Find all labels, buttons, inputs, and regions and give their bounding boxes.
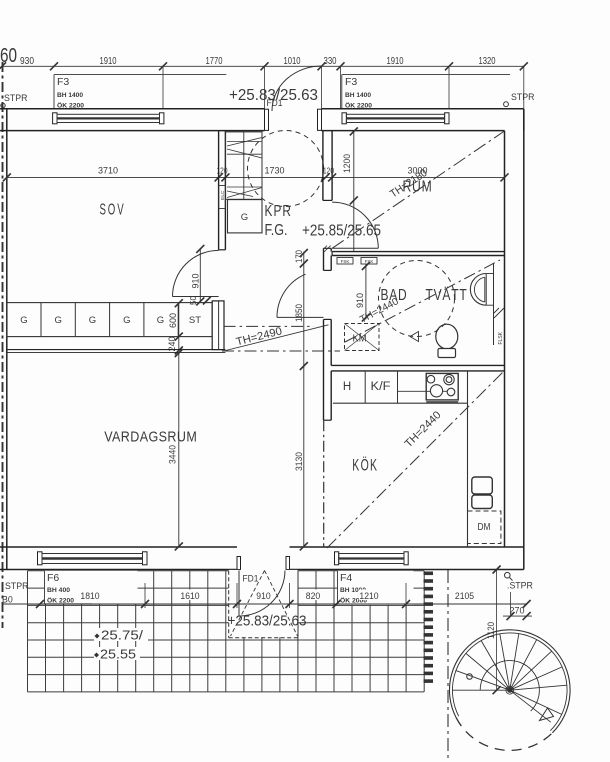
svg-text:.STPR: .STPR: [507, 581, 533, 591]
svg-text:F4: F4: [340, 572, 352, 584]
svg-text:270: 270: [510, 606, 525, 617]
svg-text:STPR: STPR: [511, 92, 534, 102]
svg-text:+25.85/25.65: +25.85/25.65: [302, 223, 381, 240]
svg-text:STPR: STPR: [4, 93, 27, 103]
svg-text:TVÄTT: TVÄTT: [426, 287, 468, 304]
svg-text:1320: 1320: [479, 56, 496, 67]
svg-text:KM: KM: [353, 334, 367, 345]
svg-text:3130: 3130: [294, 452, 305, 471]
svg-text:2105: 2105: [455, 591, 474, 602]
svg-text:KÖK: KÖK: [352, 457, 378, 475]
svg-text:25.75/: 25.75/: [101, 629, 144, 643]
svg-text:60: 60: [0, 45, 17, 67]
svg-text:STPR: STPR: [5, 581, 28, 591]
svg-text:+25.83/25.63: +25.83/25.63: [228, 613, 307, 630]
svg-text:BH 400: BH 400: [47, 587, 70, 594]
svg-text:SOV: SOV: [100, 202, 126, 219]
svg-text:ST: ST: [189, 315, 201, 326]
svg-text:B0: B0: [2, 595, 13, 605]
svg-text:1730: 1730: [265, 166, 285, 177]
svg-text:F3: F3: [345, 76, 357, 88]
svg-text:1610: 1610: [180, 591, 199, 602]
svg-text:KPR: KPR: [265, 203, 293, 220]
svg-text:H: H: [343, 381, 351, 393]
svg-text:F.G.: F.G.: [265, 222, 288, 239]
svg-text:G: G: [241, 212, 248, 223]
svg-text:3710: 3710: [98, 166, 118, 177]
svg-text:G: G: [55, 315, 62, 326]
svg-text:BH 1400: BH 1400: [57, 92, 83, 99]
svg-text:600: 600: [168, 313, 179, 328]
svg-text:50: 50: [189, 295, 198, 305]
svg-text:G: G: [157, 315, 164, 326]
svg-text:910: 910: [256, 591, 270, 602]
svg-text:1120: 1120: [486, 622, 496, 639]
svg-text:1010: 1010: [284, 56, 301, 67]
svg-text:910: 910: [191, 274, 202, 289]
svg-text:170: 170: [294, 250, 305, 263]
svg-text:F6: F6: [47, 572, 59, 584]
svg-text:G: G: [89, 315, 96, 326]
svg-text:G: G: [20, 315, 27, 326]
svg-text:BH 1400: BH 1400: [345, 92, 371, 99]
svg-text:FLSK: FLSK: [498, 331, 504, 344]
svg-text:ELC: ELC: [220, 190, 226, 200]
svg-text:1770: 1770: [206, 56, 223, 67]
svg-text:820: 820: [306, 591, 320, 602]
svg-text:K/F: K/F: [371, 381, 391, 393]
svg-text:ÖK 2200: ÖK 2200: [47, 596, 74, 605]
svg-text:FSK: FSK: [341, 259, 350, 264]
svg-text:25.55: 25.55: [100, 648, 136, 662]
svg-text:+25.83/25.63: +25.83/25.63: [229, 87, 318, 104]
svg-text:DM: DM: [478, 522, 491, 533]
svg-text:330: 330: [324, 56, 337, 67]
svg-text:1910: 1910: [387, 56, 404, 67]
svg-text:FD1: FD1: [243, 574, 259, 585]
svg-text:1910: 1910: [100, 56, 117, 67]
svg-text:1810: 1810: [80, 591, 99, 602]
svg-text:1210: 1210: [359, 591, 378, 602]
svg-text:1200: 1200: [342, 154, 353, 173]
svg-text:3440: 3440: [167, 445, 178, 464]
svg-text:1850: 1850: [294, 304, 305, 322]
svg-text:F3: F3: [57, 76, 69, 88]
svg-text:930: 930: [20, 56, 34, 67]
svg-text:G: G: [123, 315, 130, 326]
svg-text:910: 910: [355, 293, 366, 308]
svg-text:FSK: FSK: [365, 259, 374, 264]
svg-text:VARDAGSRUM: VARDAGSRUM: [104, 429, 197, 446]
